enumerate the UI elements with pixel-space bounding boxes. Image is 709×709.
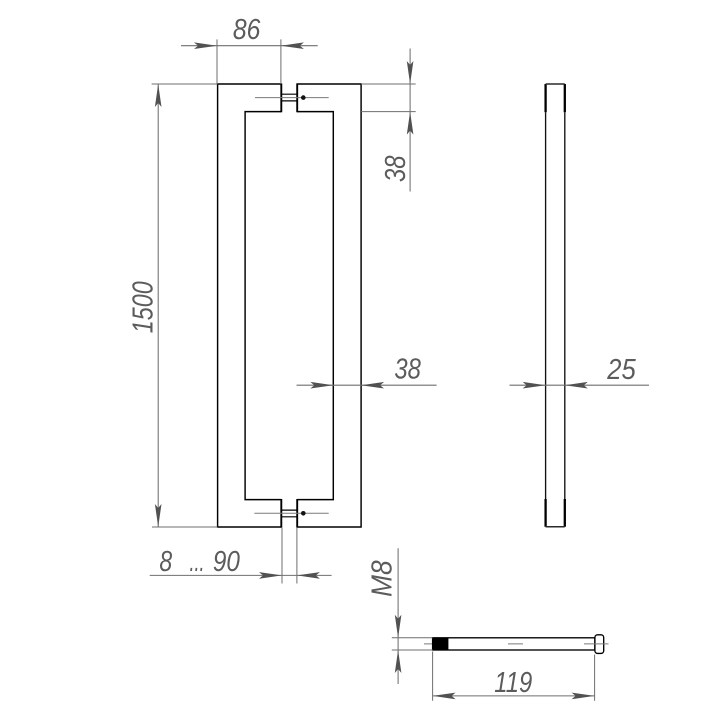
svg-text:90: 90 <box>213 546 240 578</box>
svg-text:...: ... <box>190 546 205 578</box>
svg-text:M8: M8 <box>367 560 399 597</box>
svg-text:38: 38 <box>380 155 412 182</box>
svg-text:1500: 1500 <box>128 281 160 333</box>
svg-text:25: 25 <box>606 354 636 386</box>
svg-text:86: 86 <box>233 14 261 46</box>
svg-text:38: 38 <box>394 354 421 386</box>
svg-text:119: 119 <box>494 667 532 699</box>
svg-text:8: 8 <box>159 546 172 578</box>
